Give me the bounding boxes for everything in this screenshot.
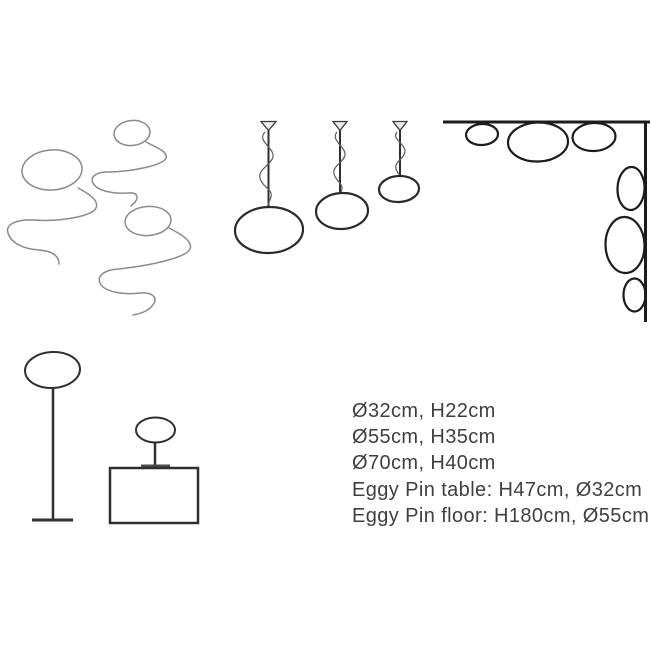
corner-mounted-lamps-illustration (443, 121, 650, 322)
table-lamp-shade (136, 418, 175, 443)
pendant-lamp-small (378, 122, 419, 204)
corner-lamp-oval (465, 123, 498, 146)
table-lamp-illustration (110, 418, 198, 524)
pendant-shade (315, 192, 369, 231)
lamp-line-art (0, 0, 650, 650)
ceiling-mount-triangle (261, 122, 276, 131)
corner-lamp-oval (507, 121, 568, 162)
corner-lamp-oval (605, 216, 646, 273)
sketch-lamp-shade (124, 205, 172, 237)
spec-line-shade-large: Ø70cm, H40cm (352, 450, 649, 476)
sketch-lamp-cord (92, 142, 166, 206)
pendant-lamps-illustration (234, 122, 419, 255)
corner-lamp-oval (624, 279, 646, 312)
floor-lamp-shade (24, 351, 81, 390)
sketch-lamp-shade (21, 148, 84, 192)
spec-line-table-lamp: Eggy Pin table: H47cm, Ø32cm (352, 477, 649, 503)
ceiling-mount-triangle (333, 122, 347, 131)
sketch-lamp-shade (113, 119, 151, 148)
pendant-lamp-medium (315, 122, 369, 231)
pendant-shade (378, 175, 419, 203)
dimension-specs: Ø32cm, H22cm Ø55cm, H35cm Ø70cm, H40cm E… (352, 398, 649, 529)
pendant-lamp-large (234, 122, 304, 255)
floor-lamp-illustration (24, 351, 81, 520)
pendant-cord (260, 132, 273, 208)
spec-line-shade-medium: Ø55cm, H35cm (352, 424, 649, 450)
pendant-shade (234, 206, 304, 254)
sketch-lamp-cord (8, 188, 97, 264)
sketch-lamps-illustration (8, 119, 191, 315)
corner-lamp-oval (572, 122, 616, 152)
sketch-lamp-cord (99, 228, 190, 315)
spec-line-floor-lamp: Eggy Pin floor: H180cm, Ø55cm (352, 503, 649, 529)
product-sheet: Ø32cm, H22cm Ø55cm, H35cm Ø70cm, H40cm E… (0, 0, 650, 650)
ceiling-mount-triangle (393, 122, 407, 131)
spec-line-shade-small: Ø32cm, H22cm (352, 398, 649, 424)
corner-lamp-oval (617, 167, 645, 211)
cabinet (110, 468, 198, 523)
